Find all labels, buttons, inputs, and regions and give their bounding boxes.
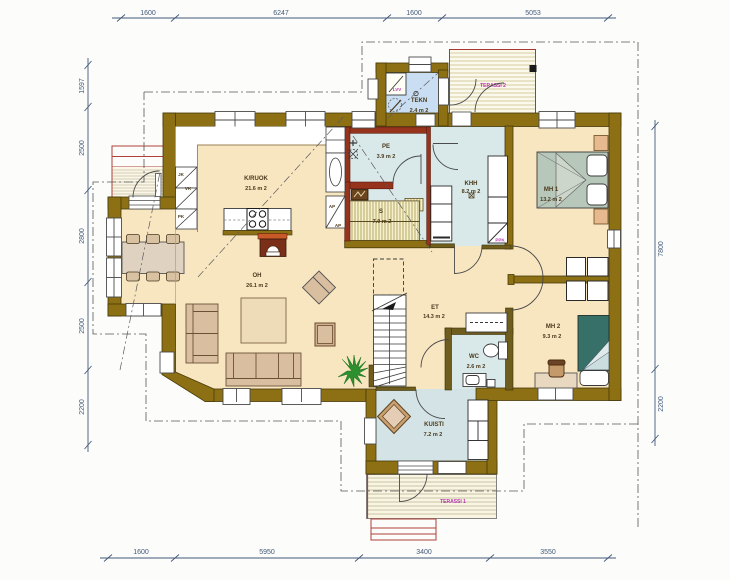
svg-text:MH 1: MH 1: [544, 187, 559, 193]
svg-text:7800: 7800: [658, 241, 665, 257]
svg-text:6247: 6247: [273, 10, 289, 17]
svg-text:AP: AP: [335, 223, 341, 228]
svg-text:2200: 2200: [658, 396, 665, 412]
svg-text:PE: PE: [382, 144, 390, 150]
svg-text:1600: 1600: [406, 10, 422, 17]
svg-text:VK: VK: [185, 186, 192, 191]
svg-text:OH: OH: [253, 273, 262, 279]
svg-text:KUISTI: KUISTI: [424, 422, 444, 428]
svg-text:21.6 m 2: 21.6 m 2: [245, 186, 267, 192]
svg-text:JK: JK: [178, 172, 185, 177]
svg-text:AP: AP: [329, 204, 335, 209]
svg-text:2800: 2800: [79, 228, 86, 244]
svg-text:7.2 m 2: 7.2 m 2: [424, 432, 443, 438]
svg-text:14.3 m 2: 14.3 m 2: [423, 314, 445, 320]
svg-text:ET: ET: [431, 305, 439, 311]
svg-text:3550: 3550: [540, 549, 556, 556]
svg-text:2.4 m 2: 2.4 m 2: [410, 108, 429, 114]
svg-text:5950: 5950: [259, 549, 275, 556]
svg-text:26.1 m 2: 26.1 m 2: [246, 283, 268, 289]
svg-text:WC: WC: [469, 354, 480, 360]
svg-text:1600: 1600: [140, 10, 156, 17]
svg-text:3400: 3400: [416, 549, 432, 556]
svg-text:PPK: PPK: [495, 238, 505, 243]
svg-text:1600: 1600: [133, 549, 149, 556]
svg-text:8.2 m 2: 8.2 m 2: [462, 189, 481, 195]
svg-text:2200: 2200: [79, 399, 86, 415]
svg-text:S: S: [379, 209, 383, 215]
svg-text:K/RUOK: K/RUOK: [244, 176, 268, 182]
svg-text:2.6 m 2: 2.6 m 2: [467, 364, 486, 370]
svg-text:MH 2: MH 2: [546, 324, 561, 330]
svg-text:9.3 m 2: 9.3 m 2: [543, 334, 562, 340]
svg-text:1597: 1597: [79, 78, 86, 94]
svg-text:2500: 2500: [79, 318, 86, 334]
svg-text:PK: PK: [178, 214, 185, 219]
svg-text:KHH: KHH: [465, 181, 478, 187]
svg-text:5053: 5053: [525, 10, 541, 17]
svg-text:LVV: LVV: [393, 87, 401, 92]
svg-text:TEKN: TEKN: [411, 98, 427, 104]
svg-text:7.0 m 2: 7.0 m 2: [373, 219, 392, 225]
svg-text:TERASSI 1: TERASSI 1: [440, 499, 466, 505]
svg-text:3.9 m 2: 3.9 m 2: [377, 154, 396, 160]
svg-text:2500: 2500: [79, 140, 86, 156]
svg-text:TERASSI 2: TERASSI 2: [480, 83, 506, 89]
svg-text:13.2 m 2: 13.2 m 2: [540, 197, 562, 203]
